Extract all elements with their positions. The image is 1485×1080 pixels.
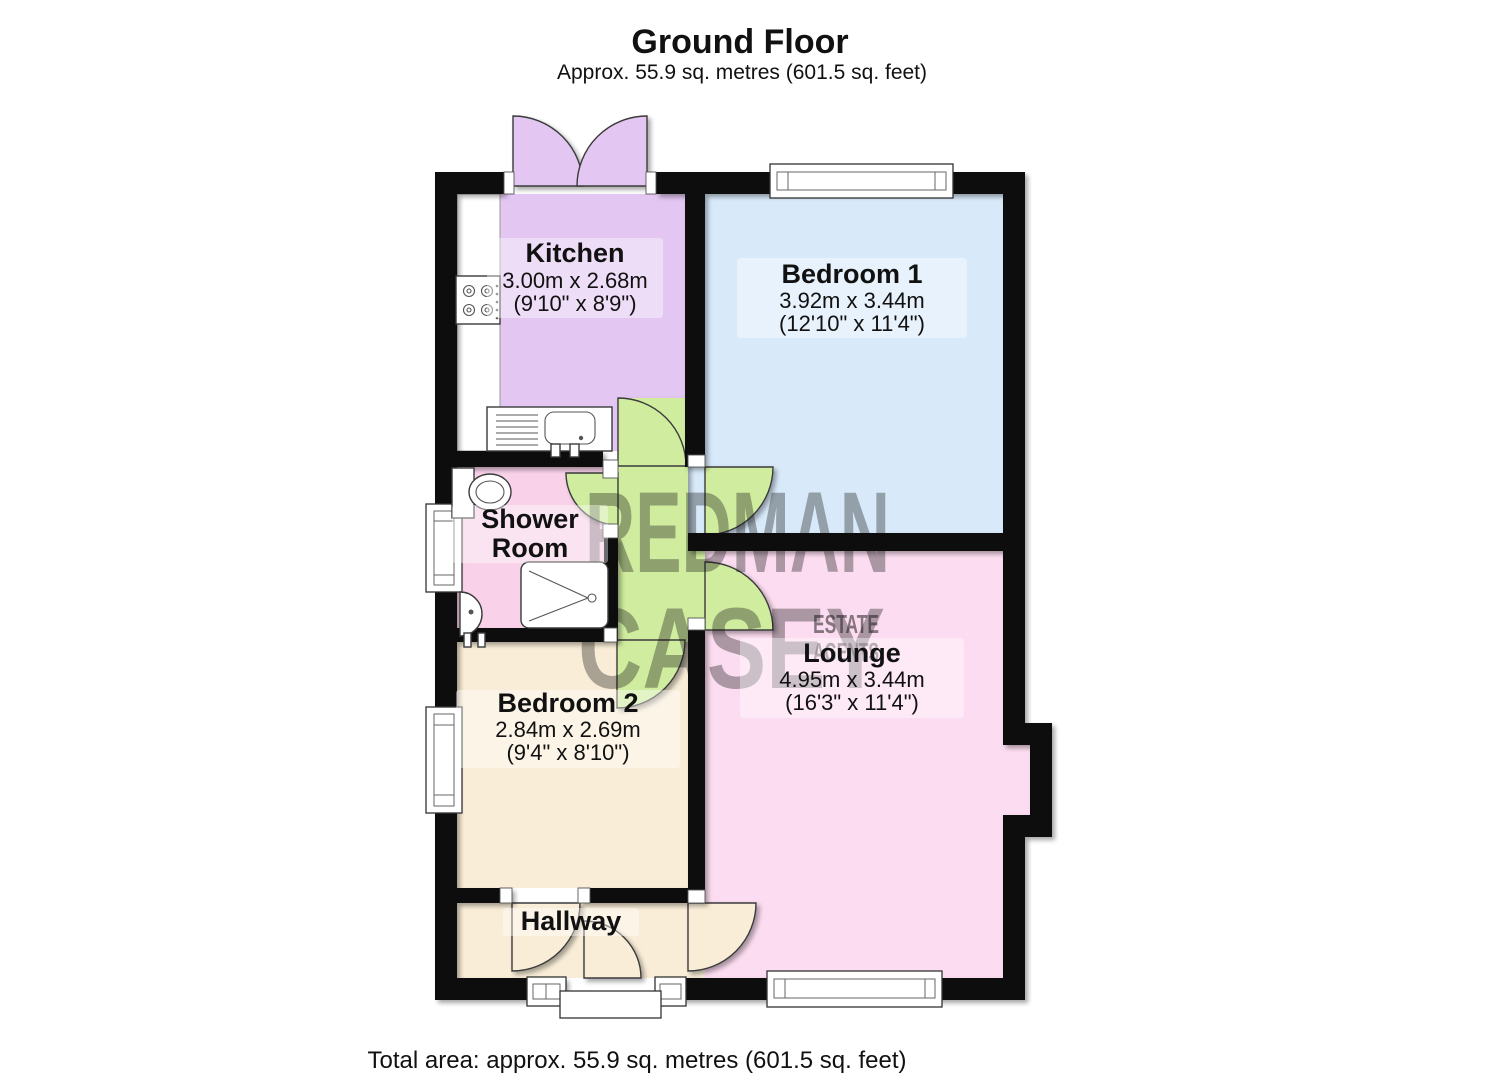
- bedroom1-label: Bedroom 1: [781, 259, 922, 289]
- shower-room-label-line1: Shower: [481, 504, 579, 534]
- jamb-cap: [688, 890, 705, 903]
- watermark-word3: ESTATE: [813, 609, 879, 639]
- sink-icon: [487, 407, 612, 457]
- kitchen-label: Kitchen: [525, 238, 624, 268]
- kitchen-imperial: (9'10" x 8'9"): [513, 291, 636, 316]
- shower-room-label-line2: Room: [492, 533, 569, 563]
- total-area-text: Total area: approx. 55.9 sq. metres (601…: [368, 1047, 907, 1074]
- jamb-cap: [500, 888, 512, 903]
- wall-bay-right: [1030, 745, 1052, 815]
- wall-right-lower: [1003, 837, 1025, 1000]
- lounge-label: Lounge: [803, 638, 900, 668]
- jamb-cap: [688, 455, 705, 467]
- jamb-cap: [646, 172, 656, 194]
- bedroom2-label: Bedroom 2: [497, 688, 638, 718]
- kitchen-external-doors: [513, 116, 647, 186]
- lounge-bay-floor: [1003, 745, 1030, 815]
- window-bedroom1-icon: [770, 164, 953, 198]
- wall-right-upper: [1003, 172, 1025, 723]
- page-title: Ground Floor: [631, 23, 848, 61]
- floor-plan-svg: REDMAN CASEY ESTATE AGENTS: [0, 0, 1485, 1080]
- kitchen-metric: 3.00m x 2.68m: [502, 268, 648, 293]
- front-door-icon: [560, 991, 661, 1018]
- page-subtitle: Approx. 55.9 sq. metres (601.5 sq. feet): [557, 61, 927, 84]
- jamb-cap: [688, 618, 705, 630]
- bedroom1-metric: 3.92m x 3.44m: [779, 288, 925, 313]
- kitchen-double-door-left-icon: [513, 116, 583, 186]
- bedroom2-imperial: (9'4" x 8'10"): [506, 740, 629, 765]
- floor-plan-page: REDMAN CASEY ESTATE AGENTS: [0, 0, 1485, 1080]
- shower-tray-icon: [521, 562, 608, 628]
- kitchen-double-door-right-icon: [577, 116, 647, 186]
- jamb-cap: [578, 888, 590, 903]
- hallway-label: Hallway: [521, 906, 622, 936]
- lounge-imperial: (16'3" x 11'4"): [785, 690, 919, 715]
- wall-bedroom1-lounge: [688, 533, 1003, 551]
- wall-hall-lounge: [688, 630, 705, 903]
- lounge-metric: 4.95m x 3.44m: [779, 667, 925, 692]
- wall-bay-top: [1003, 723, 1052, 745]
- wall-bay-bottom: [1003, 815, 1052, 837]
- window-lounge-icon: [767, 971, 942, 1007]
- wall-kitchen-shower: [457, 451, 603, 467]
- bedroom2-metric: 2.84m x 2.69m: [495, 717, 641, 742]
- bedroom1-imperial: (12'10" x 11'4"): [779, 311, 925, 336]
- jamb-cap: [603, 460, 618, 478]
- jamb-cap: [604, 628, 617, 642]
- jamb-cap: [504, 172, 514, 194]
- wall-bedroom2-hallway-right: [580, 888, 688, 903]
- wall-kitchen-bedroom1: [685, 172, 705, 467]
